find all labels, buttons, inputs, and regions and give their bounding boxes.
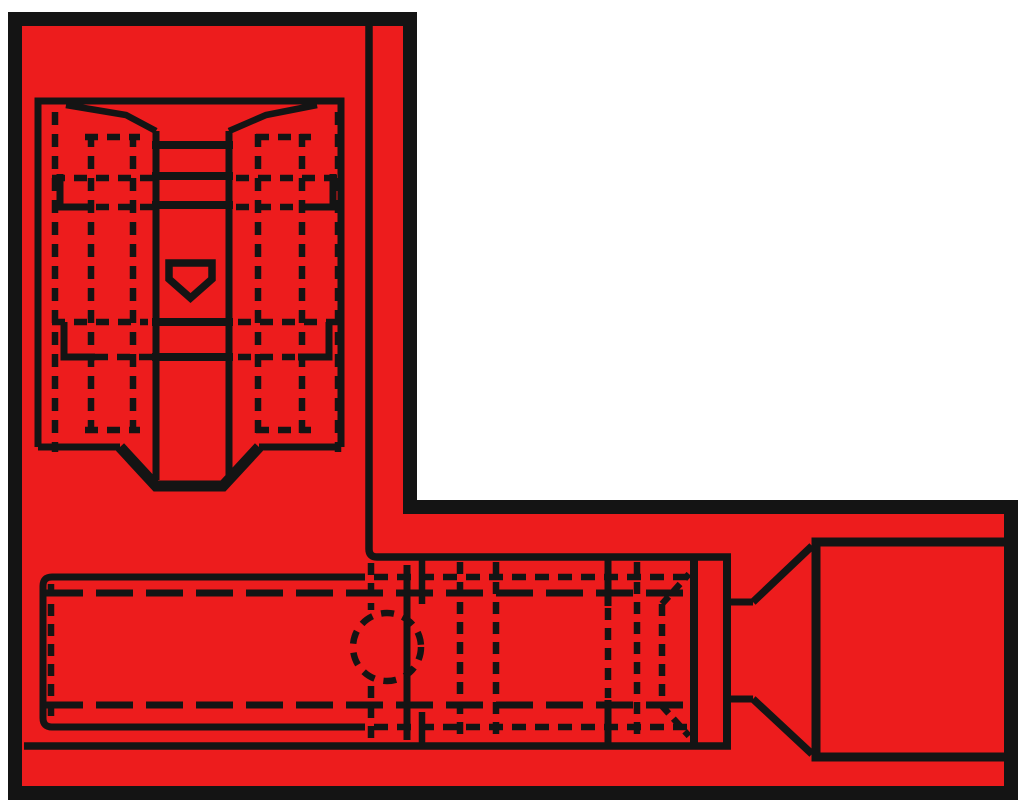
screenshot-canvas (0, 0, 1024, 804)
flag-body-edge (369, 25, 731, 557)
insulation-body-outline (15, 19, 1011, 793)
flag-terminal-technical-diagram (0, 0, 1024, 804)
